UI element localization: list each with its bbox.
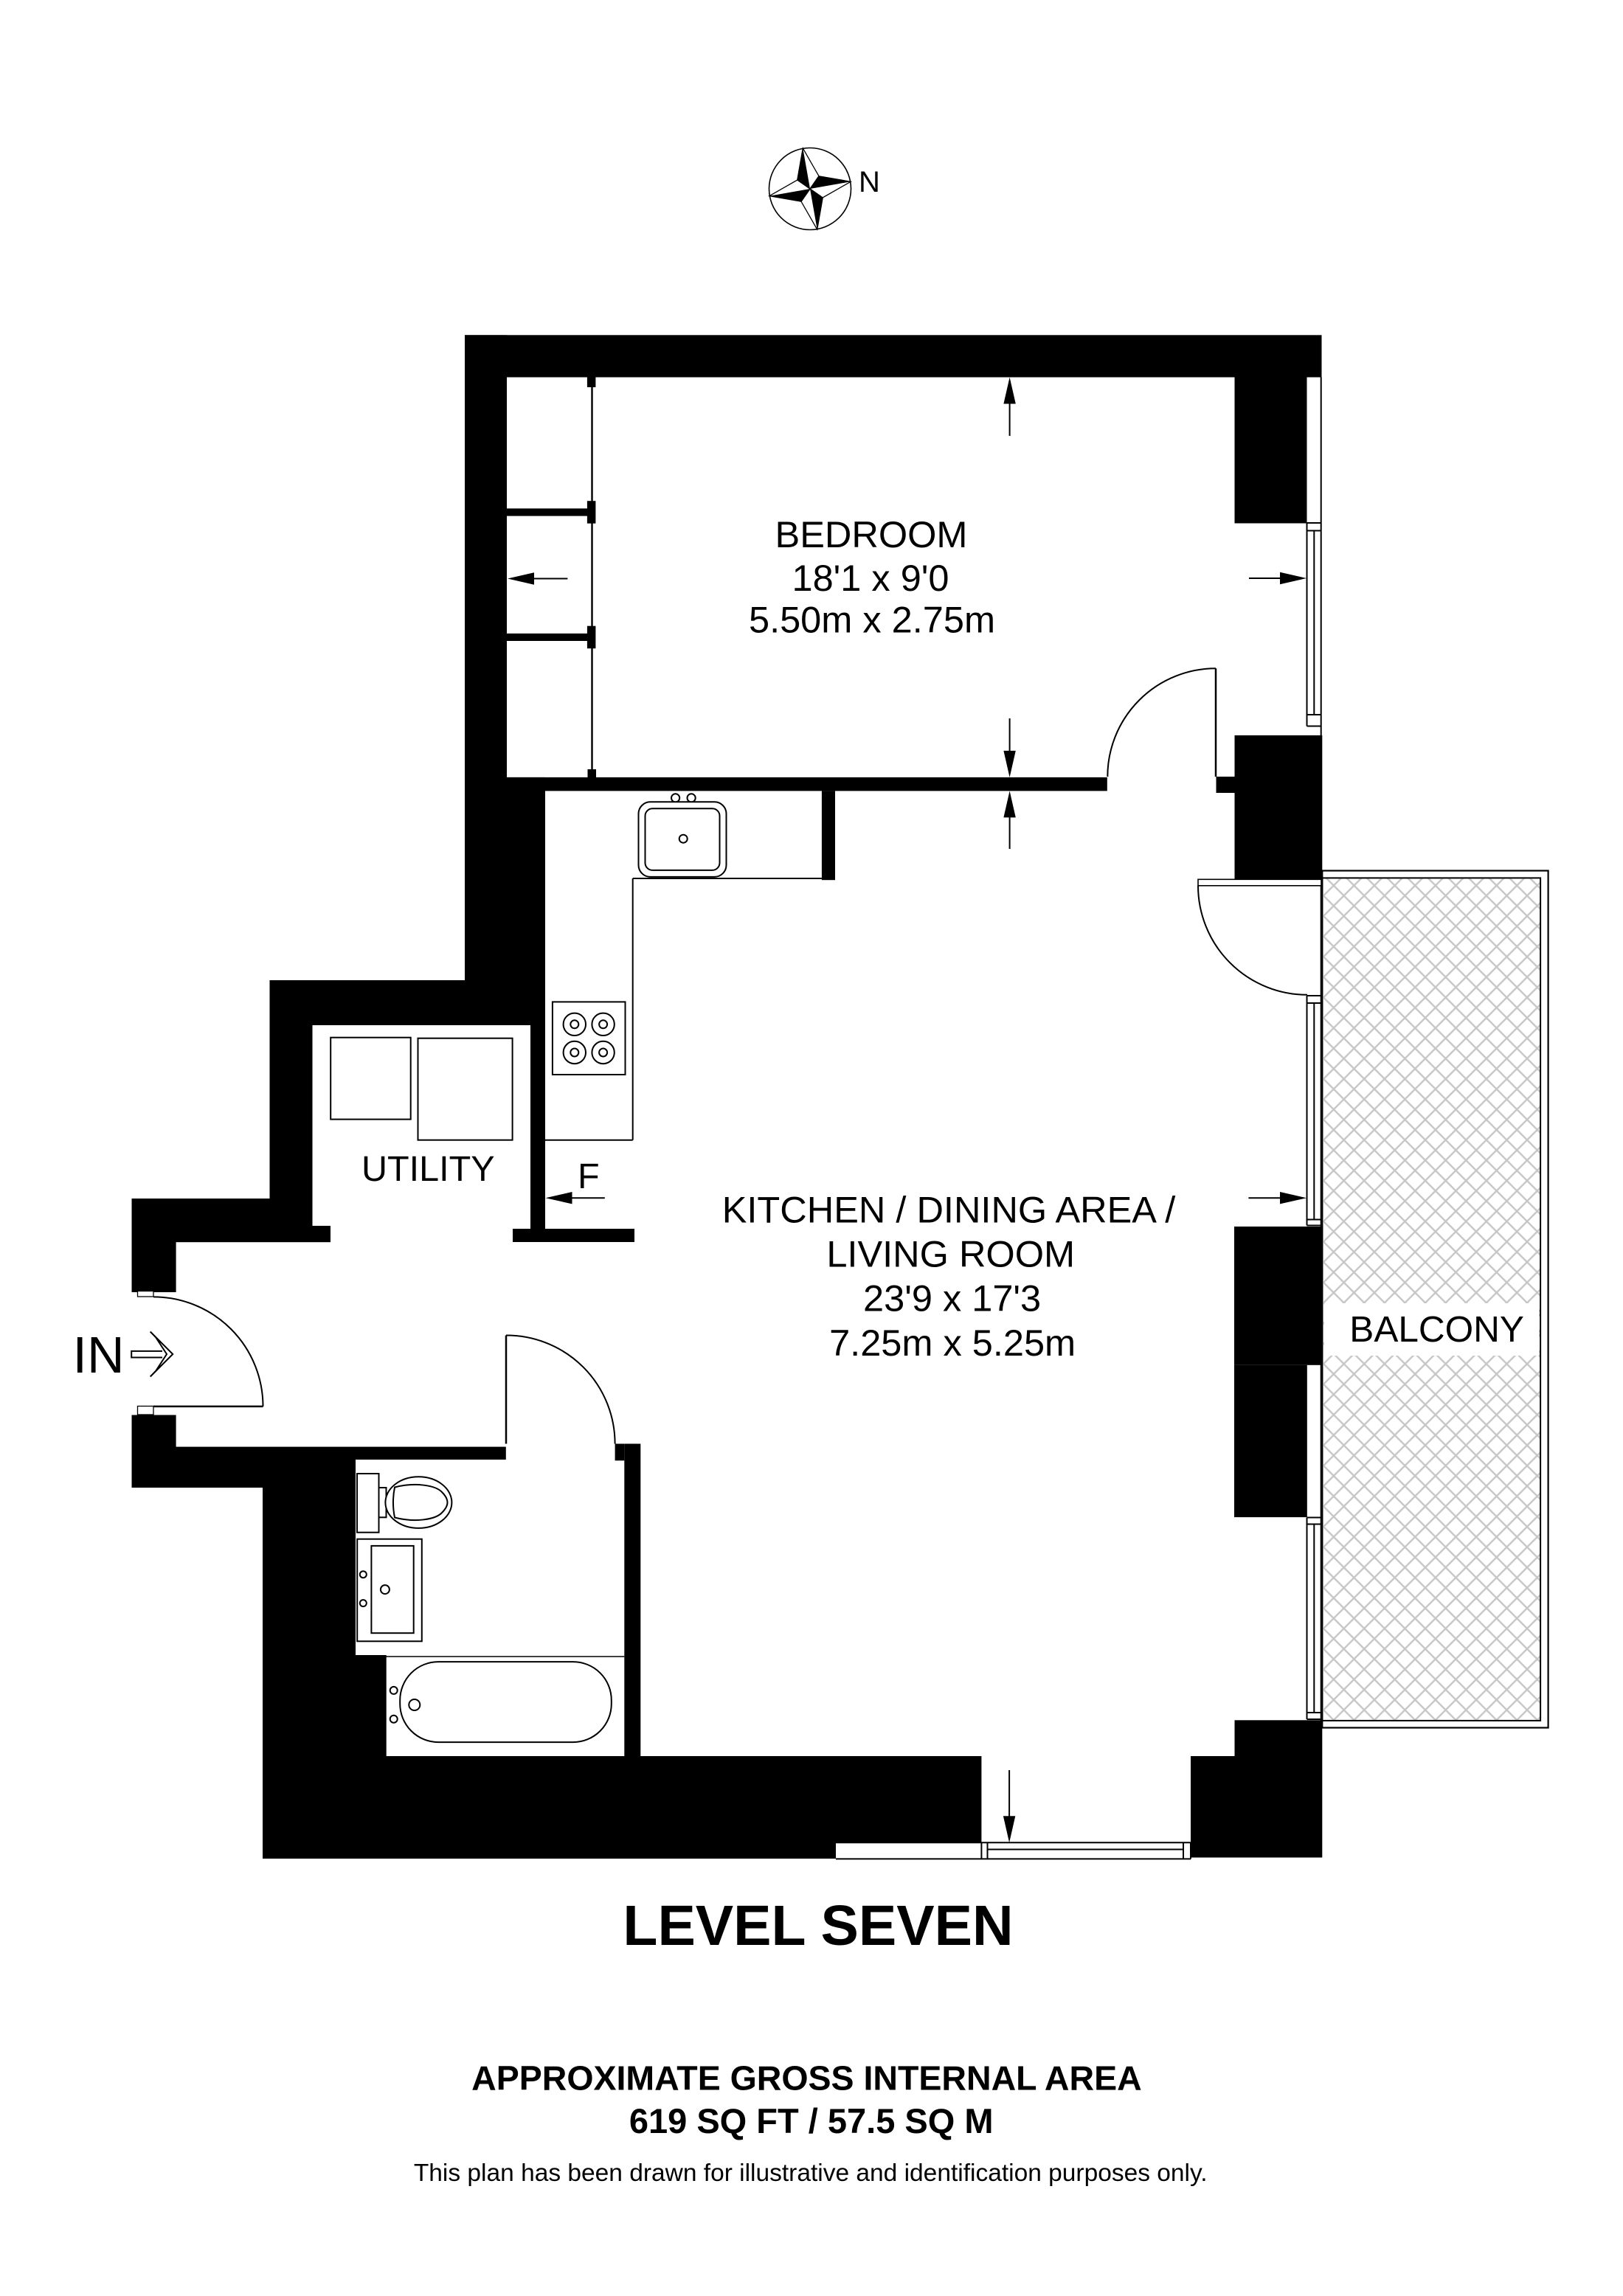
svg-text:BEDROOM: BEDROOM [775,513,968,555]
svg-text:5.50m x 2.75m: 5.50m x 2.75m [749,599,995,641]
svg-text:This plan has been drawn for i: This plan has been drawn for illustrativ… [414,2160,1208,2187]
svg-text:UTILITY: UTILITY [361,1149,495,1189]
svg-text:23'9 x 17'3: 23'9 x 17'3 [863,1277,1041,1319]
svg-text:619 SQ FT / 57.5 SQ M: 619 SQ FT / 57.5 SQ M [629,2101,994,2140]
svg-text:APPROXIMATE GROSS INTERNAL ARE: APPROXIMATE GROSS INTERNAL AREA [471,2059,1142,2097]
svg-text:BALCONY: BALCONY [1349,1309,1524,1350]
svg-text:LEVEL SEVEN: LEVEL SEVEN [623,1894,1013,1957]
svg-text:IN: IN [73,1326,125,1384]
svg-text:LIVING ROOM: LIVING ROOM [826,1233,1075,1275]
svg-text:N: N [859,166,880,198]
svg-text:7.25m x 5.25m: 7.25m x 5.25m [829,1322,1076,1364]
svg-text:18'1 x 9'0: 18'1 x 9'0 [792,557,949,599]
svg-text:F: F [578,1156,600,1196]
svg-text:KITCHEN / DINING AREA /: KITCHEN / DINING AREA / [722,1188,1177,1230]
